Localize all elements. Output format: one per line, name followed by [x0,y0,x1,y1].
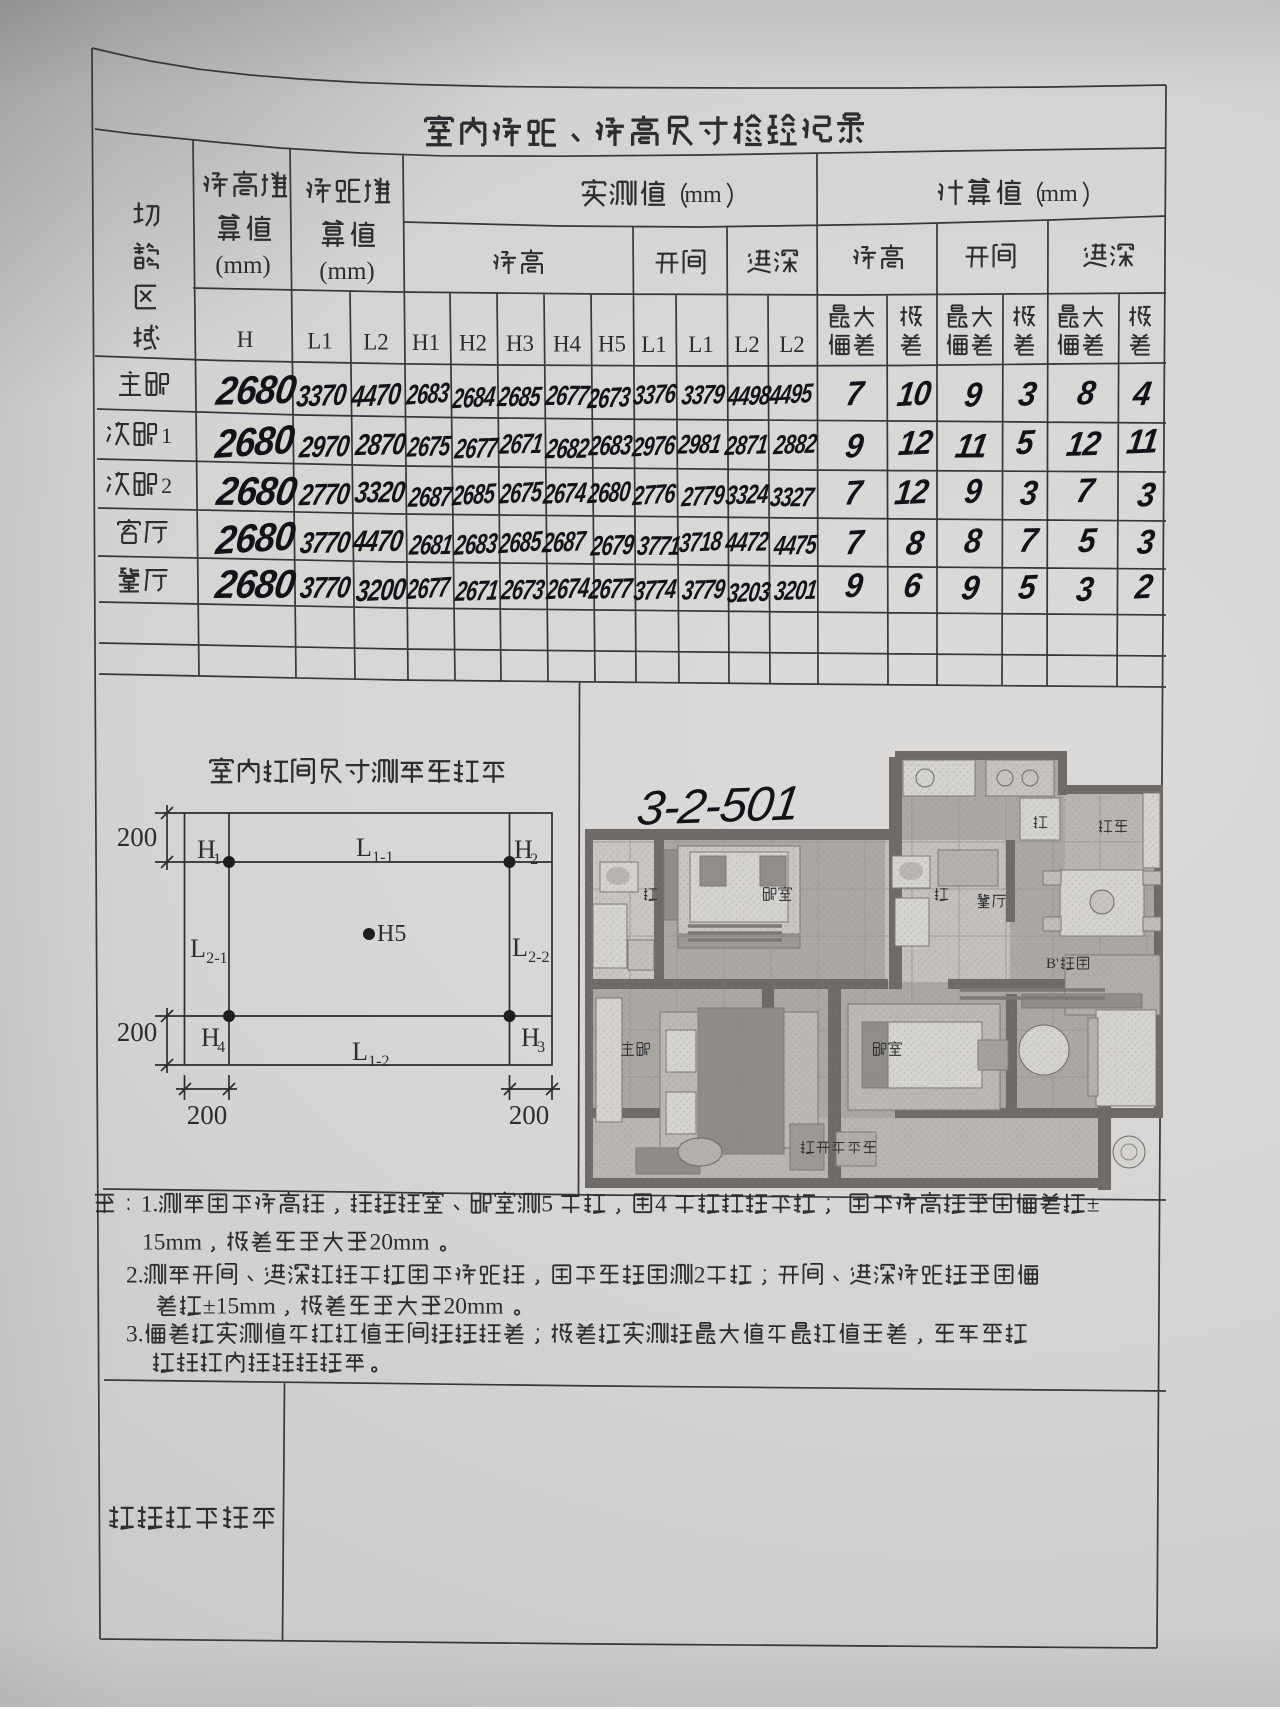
svg-text:2677: 2677 [452,433,501,465]
svg-text:3: 3 [537,1039,545,1056]
svg-text:2680: 2680 [213,470,301,515]
svg-text:±15mm: ±15mm [203,1293,276,1319]
svg-text:2683: 2683 [586,430,634,462]
svg-text:9: 9 [843,566,866,605]
svg-text:15mm: 15mm [142,1229,202,1255]
svg-text:2675: 2675 [405,431,453,464]
svg-text:2684: 2684 [450,382,497,416]
svg-text:H3: H3 [506,331,534,356]
svg-text:2882: 2882 [771,429,819,461]
svg-text:2674: 2674 [541,478,589,511]
svg-text:2680: 2680 [211,562,299,607]
svg-text:11: 11 [953,426,990,464]
svg-text:8: 8 [1075,373,1100,411]
svg-text:4472: 4472 [723,527,772,559]
svg-text:L1: L1 [641,332,667,357]
svg-text:2: 2 [1132,567,1155,606]
svg-text:B': B' [1046,956,1059,972]
svg-text:6: 6 [901,566,925,605]
svg-text:4: 4 [217,1039,225,1056]
svg-text:2: 2 [530,851,538,868]
svg-text:3718: 3718 [677,526,724,559]
svg-text:1: 1 [161,423,172,448]
svg-text:L1: L1 [307,328,333,353]
svg-text:2683: 2683 [452,528,499,561]
svg-text:3376: 3376 [631,379,678,412]
svg-text:1-1: 1-1 [372,849,393,866]
svg-text:200: 200 [117,1017,158,1047]
svg-text:9: 9 [963,471,985,511]
svg-text:4470: 4470 [349,376,403,414]
svg-text:5: 5 [1076,520,1099,559]
svg-text:2770: 2770 [297,476,353,512]
svg-text:2673: 2673 [498,575,547,606]
svg-text:H: H [237,327,254,352]
svg-text:2-2: 2-2 [528,949,549,966]
svg-text:2680: 2680 [213,368,300,415]
svg-text:3: 3 [1135,522,1157,562]
svg-text:3: 3 [1074,569,1095,609]
svg-text:11: 11 [1125,421,1161,461]
svg-text:±: ± [1087,1191,1100,1217]
svg-text:2675: 2675 [497,477,544,511]
svg-text:3324: 3324 [724,479,770,511]
svg-text:200: 200 [117,822,158,852]
svg-text:3200: 3200 [354,571,408,608]
svg-text:2685: 2685 [497,526,544,560]
svg-text:200: 200 [187,1100,228,1130]
svg-text:3: 3 [1018,473,1040,513]
svg-text:3771: 3771 [635,531,683,561]
svg-text:8: 8 [962,521,985,561]
svg-text:7: 7 [1017,521,1042,560]
svg-text:3779: 3779 [680,574,727,606]
svg-text:L: L [190,934,206,963]
svg-text:2671: 2671 [453,576,500,608]
svg-text:2976: 2976 [630,430,678,463]
svg-text:3203: 3203 [725,577,772,609]
svg-text:L1: L1 [688,332,714,357]
svg-text:2970: 2970 [297,428,352,464]
svg-text:2677: 2677 [586,574,635,606]
svg-text:L2: L2 [363,329,389,354]
svg-text:L2: L2 [779,332,805,357]
svg-text:2673: 2673 [585,382,633,415]
svg-text:2: 2 [694,1262,706,1288]
svg-text:2779: 2779 [679,480,727,513]
svg-text:5: 5 [1016,567,1039,606]
svg-text:7: 7 [844,522,867,562]
svg-text:7: 7 [1074,471,1098,510]
svg-text:3770: 3770 [298,570,353,605]
svg-text:3.: 3. [126,1321,144,1347]
svg-text:2680: 2680 [212,417,297,467]
svg-text:4475: 4475 [771,530,819,562]
svg-text:7: 7 [844,373,868,412]
svg-text:9: 9 [843,426,867,464]
svg-text:5: 5 [1014,422,1037,461]
svg-text:1: 1 [213,851,221,868]
svg-text:8: 8 [903,523,927,562]
svg-text:7: 7 [843,472,866,512]
svg-text:12: 12 [1064,424,1103,463]
svg-text:20mm: 20mm [370,1229,430,1255]
svg-text:2671: 2671 [497,429,545,461]
svg-text:3379: 3379 [680,380,728,412]
svg-text:3774: 3774 [632,574,678,607]
svg-text:2681: 2681 [407,530,455,561]
svg-text:5: 5 [541,1191,553,1217]
svg-text:1.: 1. [141,1191,159,1217]
svg-text:2687: 2687 [540,526,588,559]
svg-text:L2: L2 [734,332,760,357]
svg-text:2679: 2679 [588,530,636,563]
svg-text:H4: H4 [553,331,582,356]
svg-text:3770: 3770 [298,525,353,560]
svg-text:mm: mm [684,182,722,208]
svg-text:4: 4 [1130,374,1154,413]
svg-text:9: 9 [959,568,983,607]
svg-text:L: L [356,833,372,862]
svg-text:2685: 2685 [495,382,544,413]
svg-text:4470: 4470 [350,523,406,558]
svg-text:2682: 2682 [543,434,592,465]
svg-text:(mm): (mm) [215,252,271,279]
svg-text:1-2: 1-2 [368,1053,389,1070]
svg-text:2776: 2776 [630,479,677,513]
svg-text:12: 12 [896,423,935,463]
svg-text:H5: H5 [598,332,626,357]
svg-text:2871: 2871 [722,430,769,462]
svg-text:H2: H2 [459,331,487,356]
svg-text:2680: 2680 [585,477,632,511]
svg-text:2677: 2677 [542,381,592,412]
svg-text:3370: 3370 [295,377,349,414]
svg-text:2683: 2683 [404,378,451,412]
svg-text:2.: 2. [126,1262,144,1288]
svg-text:12: 12 [893,472,931,512]
svg-text:3327: 3327 [768,483,817,513]
svg-text:10: 10 [895,373,933,413]
svg-text:2981: 2981 [675,429,723,460]
svg-text:2-1: 2-1 [206,950,227,967]
svg-text:H1: H1 [412,330,440,355]
svg-text:2685: 2685 [450,479,497,513]
svg-text:2870: 2870 [353,426,409,461]
svg-text:4495: 4495 [767,378,815,411]
svg-text:H5: H5 [377,921,406,947]
svg-text:L: L [352,1037,368,1066]
svg-text:L: L [512,933,528,962]
svg-text:3201: 3201 [772,575,819,607]
svg-text:2674: 2674 [544,573,591,606]
svg-text:2: 2 [161,473,172,498]
svg-text:2687: 2687 [406,482,456,513]
svg-text:3: 3 [1135,475,1158,514]
svg-text:4: 4 [655,1191,667,1217]
svg-text:4498: 4498 [725,381,773,413]
svg-text:2677: 2677 [405,572,453,606]
svg-text:2680: 2680 [213,514,299,563]
svg-text:9: 9 [962,375,985,414]
svg-text:3320: 3320 [352,474,407,509]
svg-text:20mm: 20mm [444,1293,504,1319]
svg-text:3: 3 [1016,375,1039,413]
svg-text:(mm): (mm) [319,258,375,285]
svg-text:mm: mm [1040,181,1078,207]
svg-text:3-2-501: 3-2-501 [634,777,803,836]
svg-text:200: 200 [509,1100,550,1130]
